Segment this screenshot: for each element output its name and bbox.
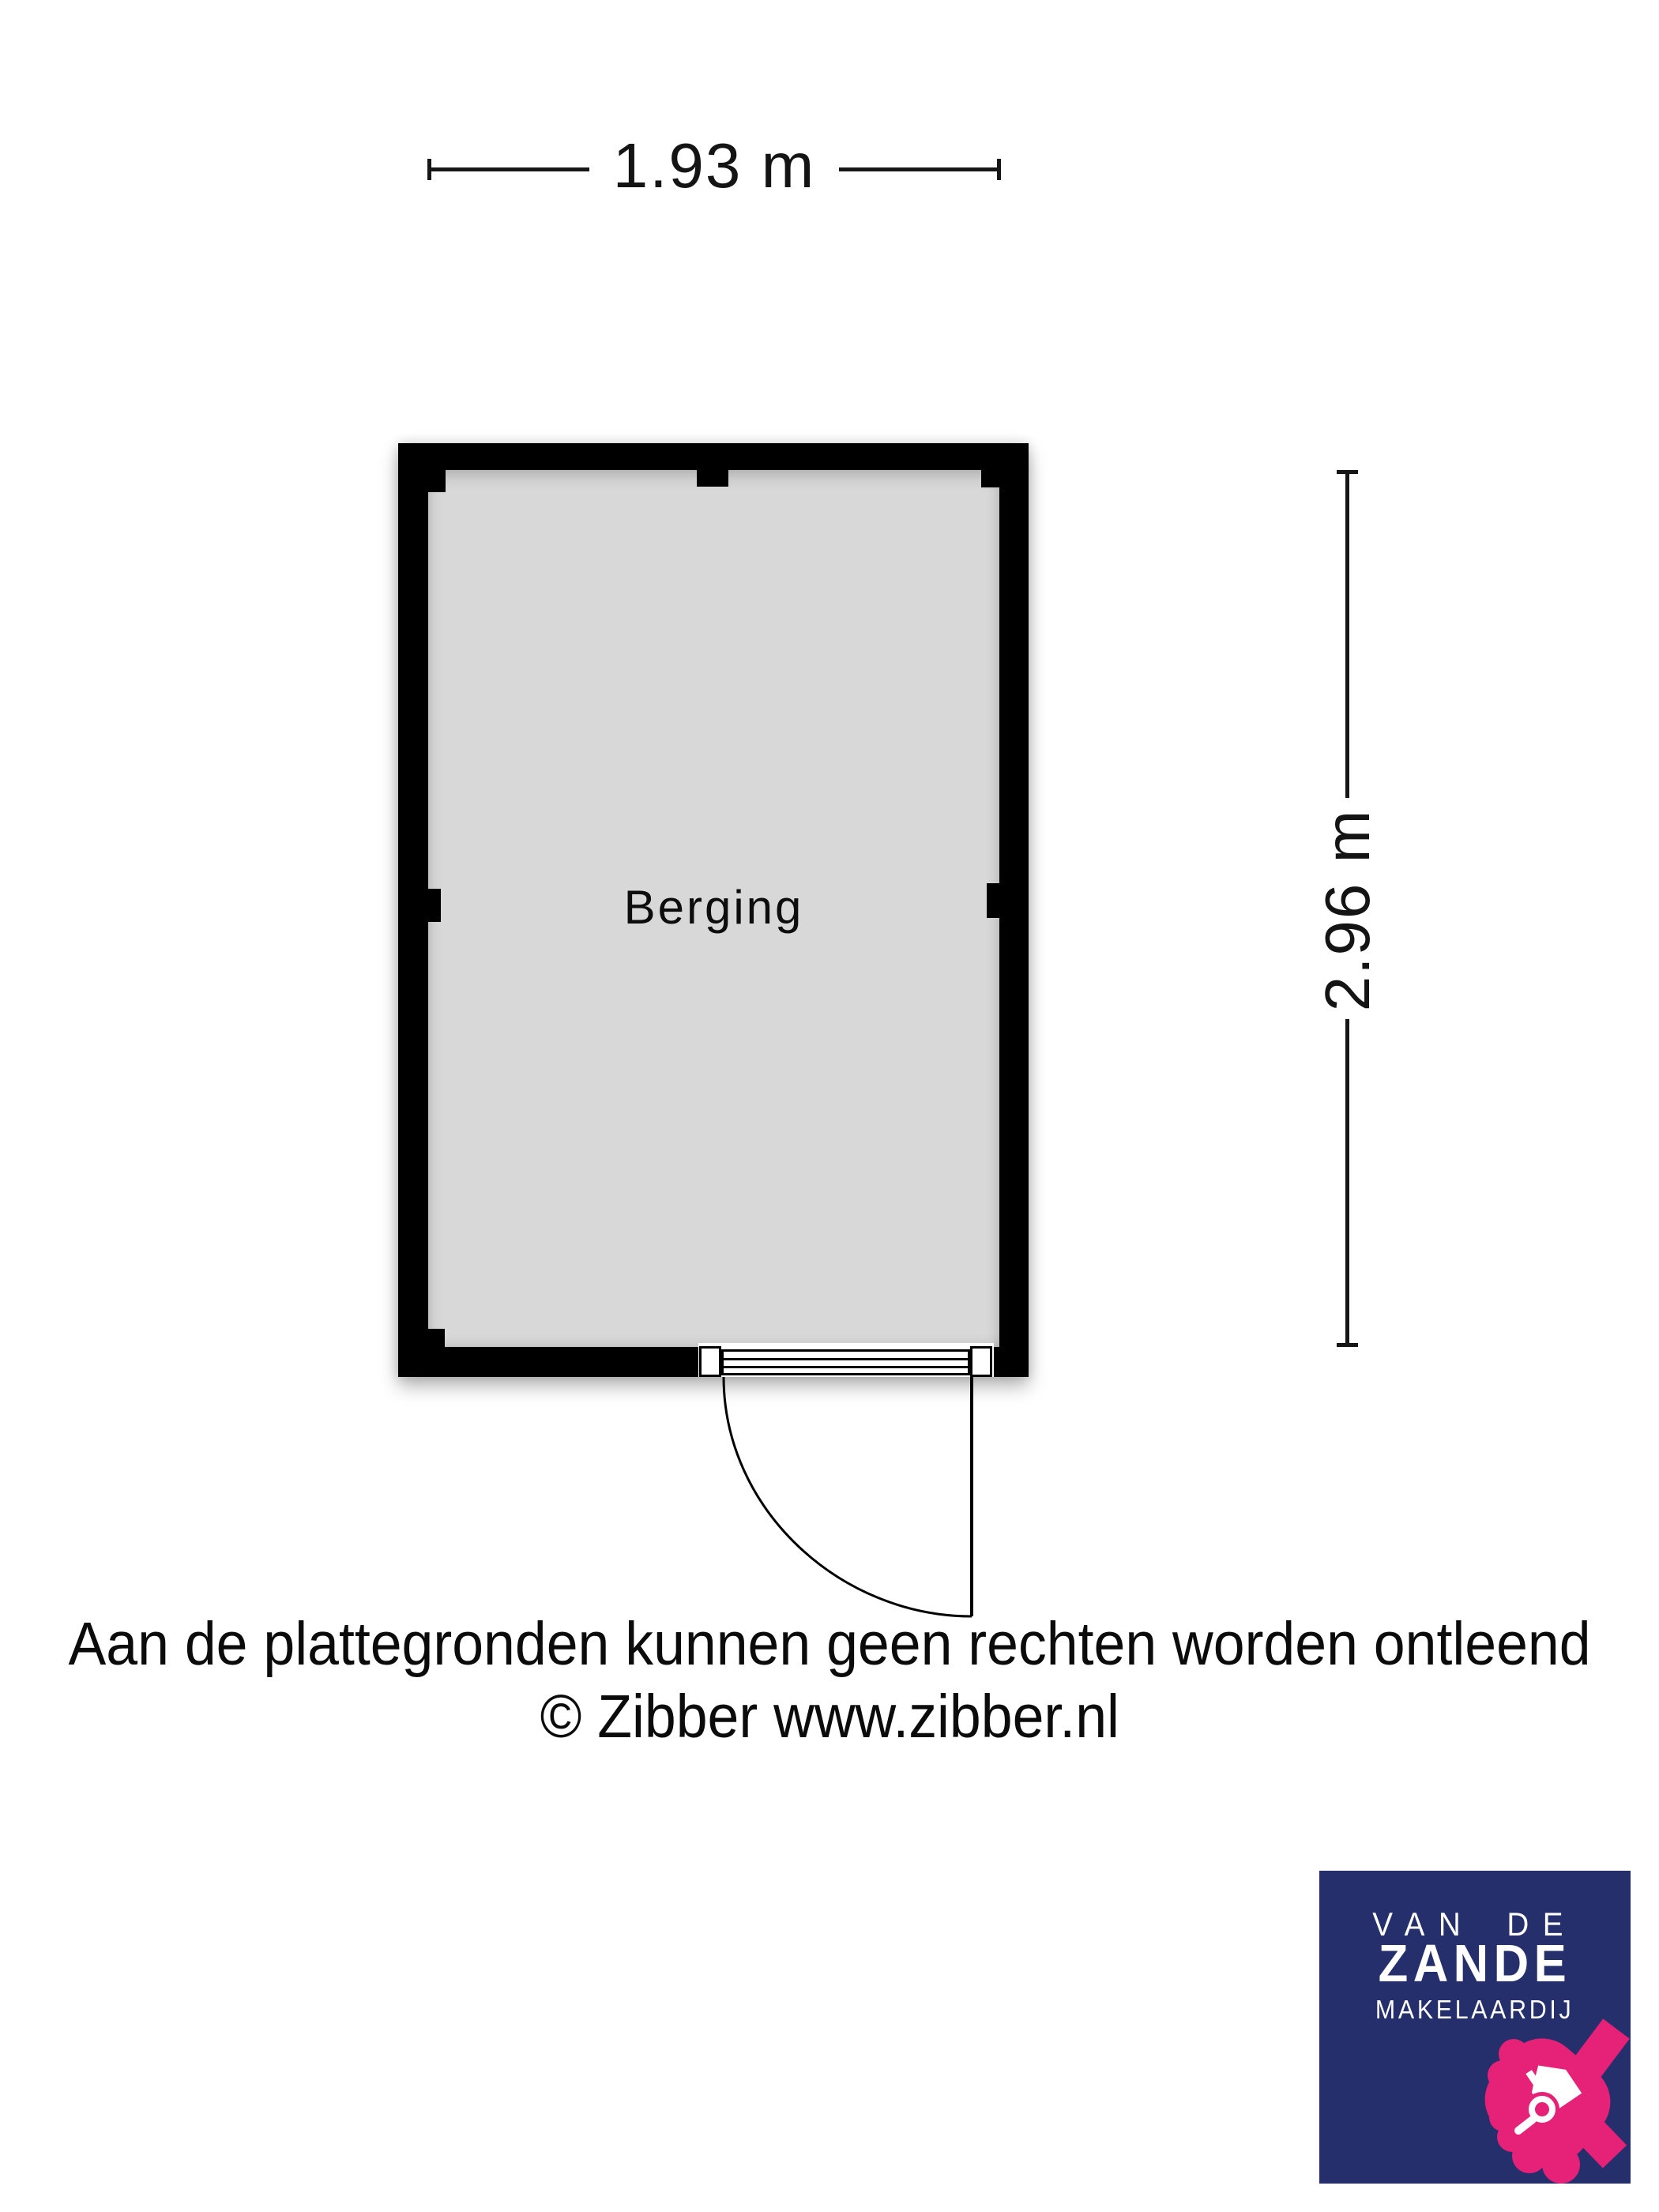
- agency-logo: VAN DE ZANDE MAKELAARDIJ: [1319, 1871, 1631, 2184]
- room-label: Berging: [428, 884, 999, 931]
- door-sill: [721, 1349, 970, 1375]
- hand-house-magnifier-icon: [1473, 2013, 1631, 2184]
- door-sill-line: [724, 1358, 968, 1360]
- wall-stub-top-left: [428, 470, 446, 492]
- door-jamb-left: [699, 1346, 721, 1377]
- dimension-tick: [997, 159, 1001, 180]
- floorplan-page: 1.93 m Berging 2.96 m: [0, 0, 1659, 2212]
- dimension-line: [839, 167, 997, 171]
- wall-stub-top-right: [981, 470, 999, 487]
- wall-stub-right-middle: [987, 883, 999, 918]
- logo-text-name: ZANDE: [1379, 1937, 1572, 1990]
- disclaimer-text: Aan de plattegronden kunnen geen rechten…: [68, 1608, 1590, 1680]
- logo-line-zande: ZANDE: [1319, 1937, 1631, 1990]
- dimension-line: [1345, 1019, 1349, 1344]
- height-dimension-label: 2.96 m: [1316, 809, 1379, 1012]
- wall-stub-bottom-left: [428, 1329, 445, 1347]
- dimension-line: [431, 167, 589, 171]
- disclaimer-line-1: Aan de plattegronden kunnen geen rechten…: [0, 1608, 1659, 1680]
- floor-plan: Berging: [398, 443, 1029, 1377]
- wall-stub-top-center: [697, 470, 728, 487]
- disclaimer-line-2: © Zibber www.zibber.nl: [0, 1681, 1659, 1752]
- door-sill-line: [724, 1366, 968, 1368]
- wall-stub-left-middle: [428, 889, 441, 922]
- room-floor: Berging: [428, 470, 999, 1347]
- dimension-line: [1345, 474, 1349, 798]
- width-dimension-label: 1.93 m: [589, 134, 839, 197]
- copyright-text: © Zibber www.zibber.nl: [540, 1681, 1119, 1752]
- door-jamb-right: [970, 1346, 992, 1377]
- door-swing-arc: [724, 1377, 972, 1616]
- dimension-tick: [1337, 1343, 1358, 1347]
- door-swing: [711, 1375, 1003, 1636]
